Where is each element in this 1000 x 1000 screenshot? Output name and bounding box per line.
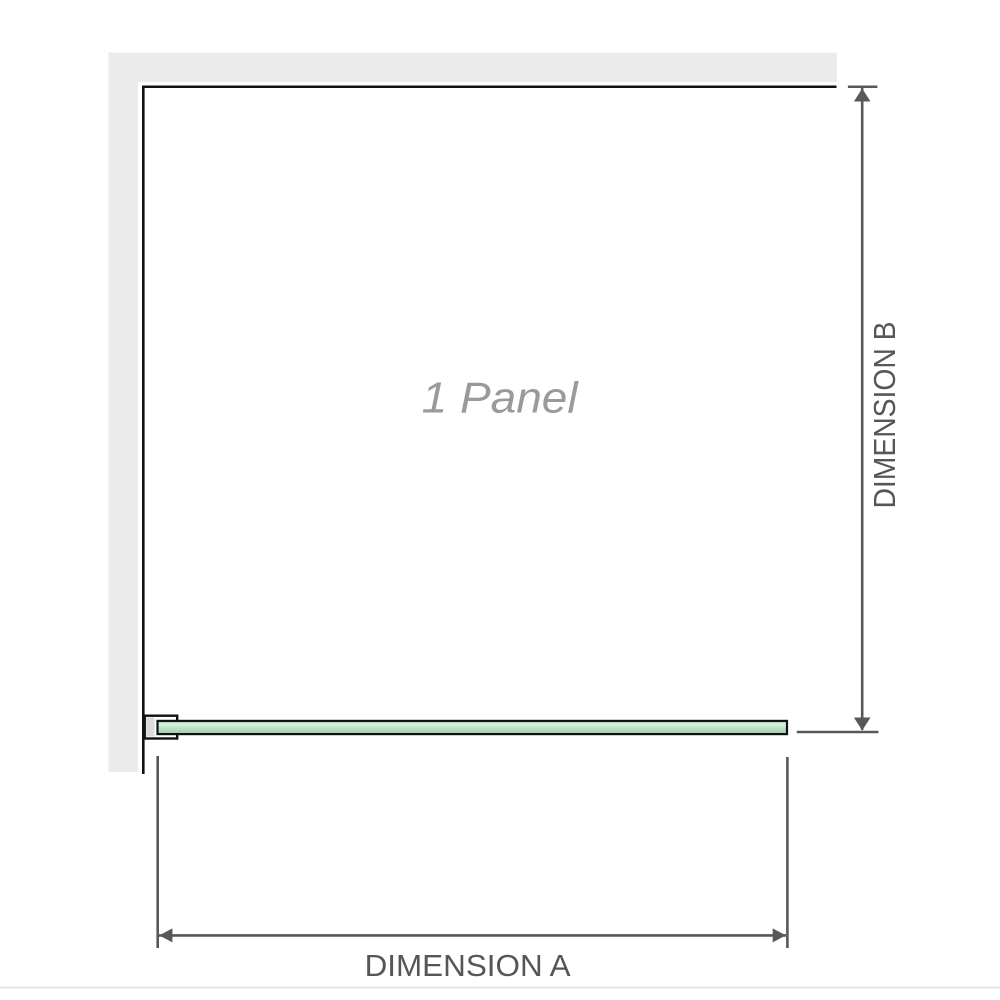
svg-text:DIMENSION A: DIMENSION A	[365, 948, 571, 983]
svg-text:1 Panel: 1 Panel	[422, 373, 579, 422]
svg-text:DIMENSION B: DIMENSION B	[867, 322, 902, 509]
